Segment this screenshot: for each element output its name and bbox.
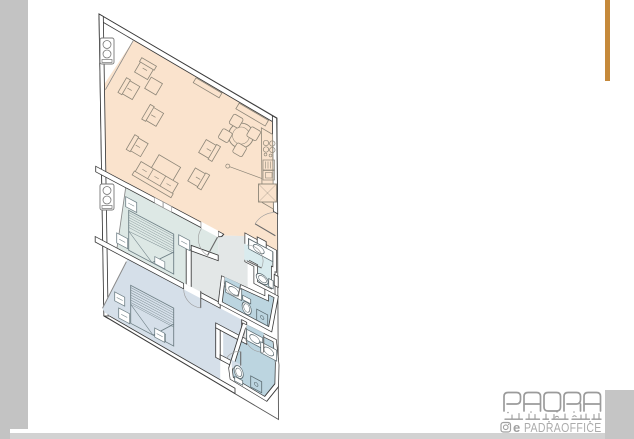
svg-text:e: e (513, 421, 520, 434)
